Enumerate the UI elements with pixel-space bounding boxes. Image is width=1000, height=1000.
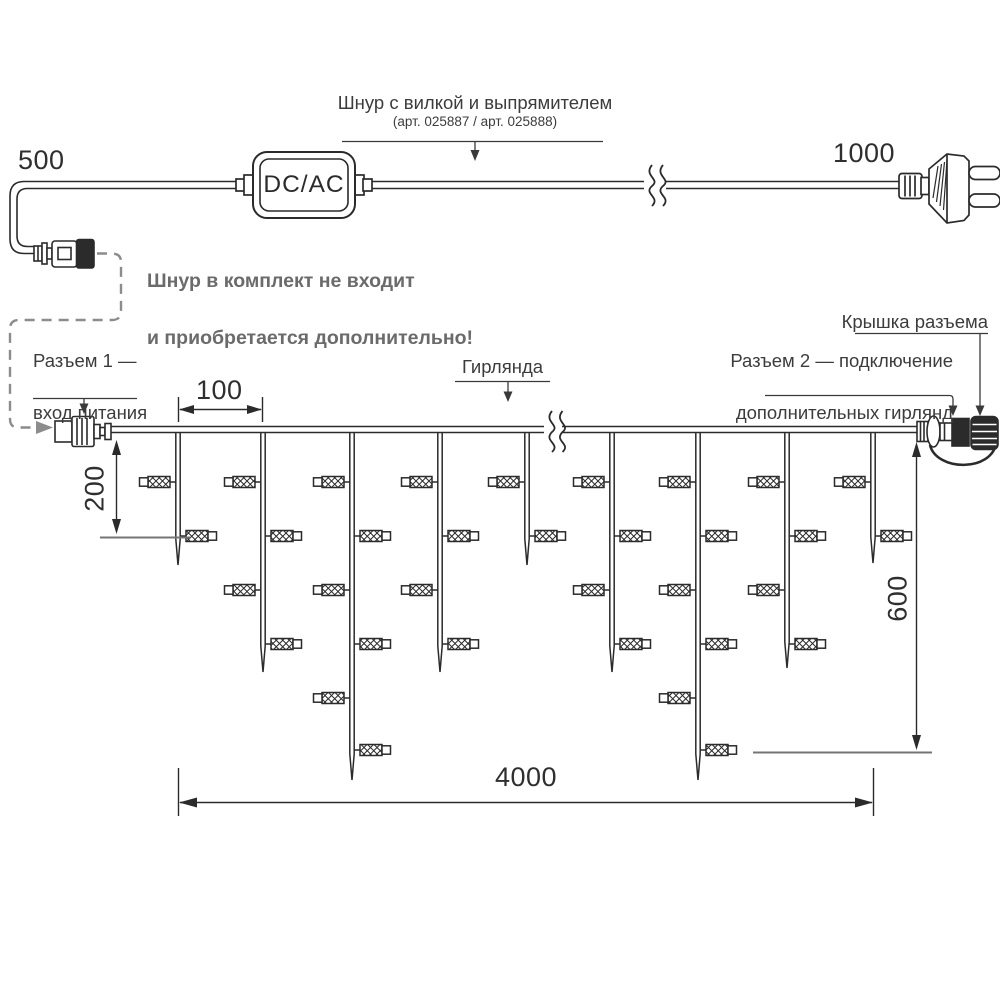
cord-break-icon bbox=[649, 165, 665, 206]
dc-ac-adapter-label: DC/AC bbox=[254, 171, 354, 199]
connector2-label-line1: Разъем 2 — подключение bbox=[730, 350, 953, 371]
bulb-icon bbox=[574, 477, 610, 488]
garland-drop bbox=[749, 433, 826, 668]
bulb-icon bbox=[140, 477, 176, 488]
garland-drop bbox=[489, 433, 566, 565]
dim-100-arrow-right bbox=[247, 405, 262, 414]
connector1-label: Разъем 1 — вход питания bbox=[33, 348, 147, 426]
cord-connector-icon bbox=[34, 240, 94, 269]
dim-600-label: 600 bbox=[883, 559, 914, 639]
bulb-icon bbox=[835, 477, 871, 488]
power-cord-wire bbox=[10, 182, 900, 254]
connector2-label: Разъем 2 — подключение дополнительных ги… bbox=[700, 348, 953, 426]
bulb-icon bbox=[402, 585, 438, 596]
bulb-icon bbox=[749, 477, 785, 488]
dim-500-label: 500 bbox=[18, 145, 65, 176]
bulb-icon bbox=[442, 531, 478, 542]
connector1-label-line1: Разъем 1 — bbox=[33, 350, 137, 371]
bulb-icon bbox=[354, 531, 390, 542]
garland-drop bbox=[574, 433, 651, 672]
bulb-icon bbox=[442, 639, 478, 650]
bulb-icon bbox=[529, 531, 565, 542]
bulb-icon bbox=[314, 477, 350, 488]
connector1-label-line2: вход питания bbox=[33, 402, 147, 423]
garland-drop bbox=[314, 433, 391, 780]
bulb-icon bbox=[354, 639, 390, 650]
cord-note-title: Шнур с вилкой и выпрямителем bbox=[330, 90, 620, 116]
bulb-icon bbox=[660, 693, 696, 704]
bulb-icon bbox=[225, 585, 261, 596]
garland-label-leader bbox=[455, 382, 550, 393]
bulb-icon bbox=[314, 585, 350, 596]
bulb-icon bbox=[875, 531, 911, 542]
not-included-note-line2: и приобретается дополнительно! bbox=[147, 327, 473, 349]
dim-200-arrow-down bbox=[112, 519, 121, 534]
bulb-icon bbox=[660, 477, 696, 488]
cap-label-arrowhead bbox=[976, 406, 985, 417]
bulb-icon bbox=[789, 639, 825, 650]
dim-200-label: 200 bbox=[80, 449, 111, 529]
dim-4000-label: 4000 bbox=[480, 762, 572, 793]
bulb-icon bbox=[749, 585, 785, 596]
garland-main-wire bbox=[111, 427, 917, 433]
garland-drop bbox=[402, 433, 479, 672]
dim-200-arrow-up bbox=[112, 440, 121, 455]
bulb-icon bbox=[314, 693, 350, 704]
power-plug-icon bbox=[899, 154, 1000, 223]
garland-drop bbox=[660, 433, 737, 780]
bulb-icon bbox=[574, 585, 610, 596]
connector-cap-icon bbox=[971, 417, 998, 450]
cord-note-leader bbox=[342, 142, 603, 152]
bulb-icon bbox=[489, 477, 525, 488]
cord-note-arrowhead bbox=[471, 150, 480, 161]
garland-drop bbox=[225, 433, 302, 672]
bulb-icon bbox=[789, 531, 825, 542]
not-included-note: Шнур в комплект не входит и приобретаетс… bbox=[147, 267, 473, 352]
dim-4000-arrow-left bbox=[179, 798, 197, 808]
garland-drop bbox=[835, 433, 912, 563]
garland-break-icon bbox=[549, 411, 565, 452]
bulb-icon bbox=[180, 531, 216, 542]
bulb-icon bbox=[402, 477, 438, 488]
dim-600-arrow-up bbox=[912, 442, 921, 457]
bulb-icon bbox=[614, 531, 650, 542]
bulb-icon bbox=[660, 585, 696, 596]
dim-600-arrow-down bbox=[912, 735, 921, 750]
bulb-icon bbox=[700, 745, 736, 756]
bulb-icon bbox=[265, 531, 301, 542]
garland-drop bbox=[140, 433, 217, 565]
bulb-icon bbox=[265, 639, 301, 650]
bulb-icon bbox=[225, 477, 261, 488]
dim-100-label: 100 bbox=[196, 375, 243, 406]
connector2-label-line2: дополнительных гирлянд bbox=[736, 402, 953, 423]
garland-label: Гирлянда bbox=[440, 354, 565, 380]
cap-label: Крышка разъема bbox=[820, 309, 988, 335]
dim-100-arrow-left bbox=[179, 405, 194, 414]
bulb-icon bbox=[614, 639, 650, 650]
dim-4000-arrow-right bbox=[855, 798, 873, 808]
diagram-canvas: 500 1000 Шнур с вилкой и выпрямителем (а… bbox=[0, 0, 1000, 1000]
garland-label-arrowhead bbox=[504, 392, 513, 403]
bulb-icon bbox=[700, 531, 736, 542]
bulb-icon bbox=[700, 639, 736, 650]
garland-drops-layer bbox=[140, 433, 912, 780]
cord-note-subtitle: (арт. 025887 / арт. 025888) bbox=[330, 113, 620, 132]
not-included-note-line1: Шнур в комплект не входит bbox=[147, 270, 415, 292]
dim-1000-label: 1000 bbox=[833, 138, 895, 169]
bulb-icon bbox=[354, 745, 390, 756]
